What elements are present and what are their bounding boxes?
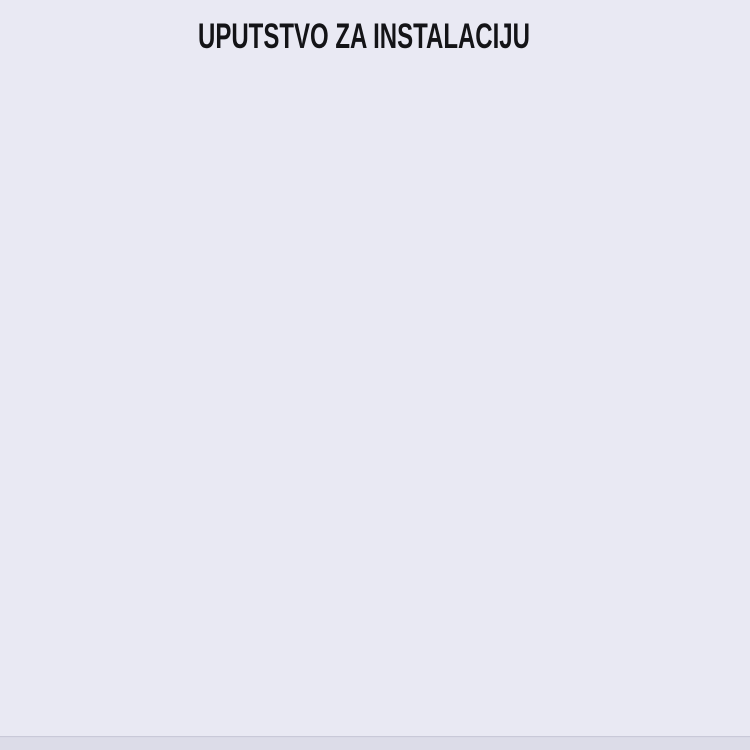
svg-text:UPUTSTVO ZA INSTALACIJU: UPUTSTVO ZA INSTALACIJU bbox=[198, 17, 530, 56]
